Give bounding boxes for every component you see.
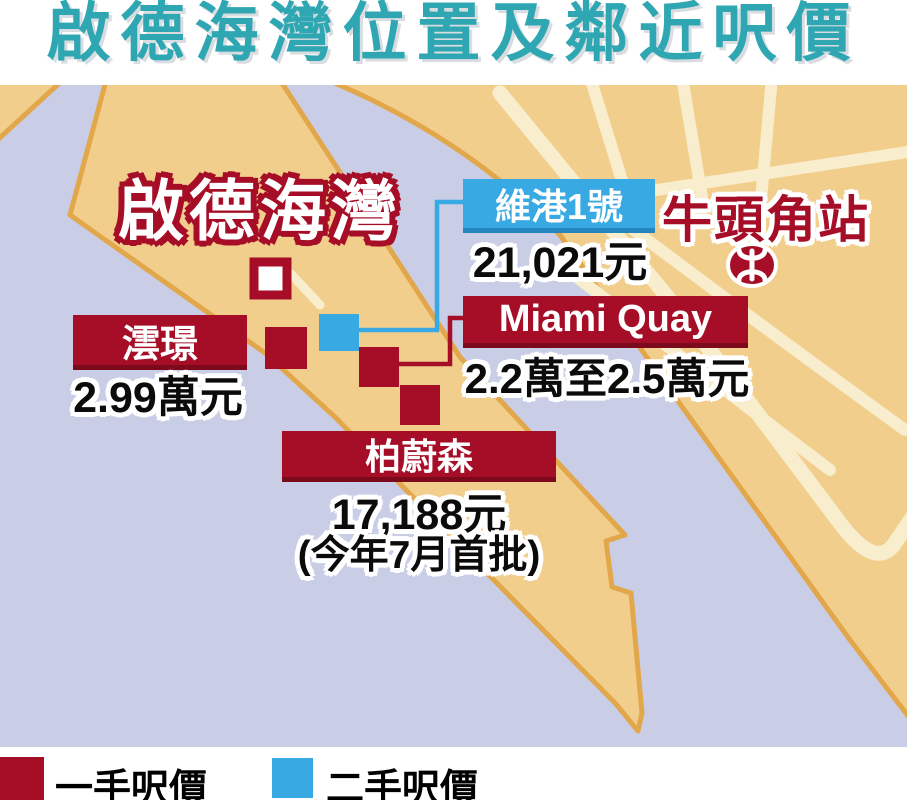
project-name: Miami Quay — [499, 298, 712, 341]
legend-swatch-first-hand — [0, 757, 44, 800]
project-note-pak-wai-sen: (今年7月首批) — [269, 524, 569, 580]
area-label-kai-tak-bay: 啟德海灣 — [118, 158, 438, 254]
project-tag-pak-wai-sen: 柏蔚森 — [282, 431, 556, 482]
project-price-vic-harbour-1: 21,021元 — [460, 228, 660, 290]
project-name: 維港1號 — [495, 178, 623, 230]
project-tag-miami-quay: Miami Quay — [463, 296, 748, 348]
project-price-wan-king: 2.99萬元 — [43, 363, 273, 425]
project-name: 澐璟 — [122, 313, 198, 368]
legend-label-first-hand: 一手呎價 — [55, 757, 207, 800]
page-title: 啟德海灣位置及鄰近呎價 — [0, 0, 907, 72]
marker-vic-harbour-1 — [319, 314, 359, 351]
project-tag-wan-king: 澐璟 — [73, 315, 247, 370]
marker-pak-wai-sen — [400, 385, 440, 425]
marker-miami-quay — [359, 347, 399, 387]
project-name: 柏蔚森 — [365, 428, 473, 480]
station-label-ngau-tau-kok: 牛頭角站 — [662, 180, 902, 252]
project-tag-vic-harbour-1: 維港1號 — [463, 179, 655, 233]
legend-label-second-hand: 二手呎價 — [326, 757, 478, 800]
marker-kai-tak-bay — [254, 262, 287, 295]
legend-swatch-second-hand — [272, 758, 313, 798]
project-price-miami-quay: 2.2萬至2.5萬元 — [452, 345, 762, 406]
infographic-kai-tak-bay: 啟德海灣位置及鄰近呎價 — [0, 0, 907, 800]
